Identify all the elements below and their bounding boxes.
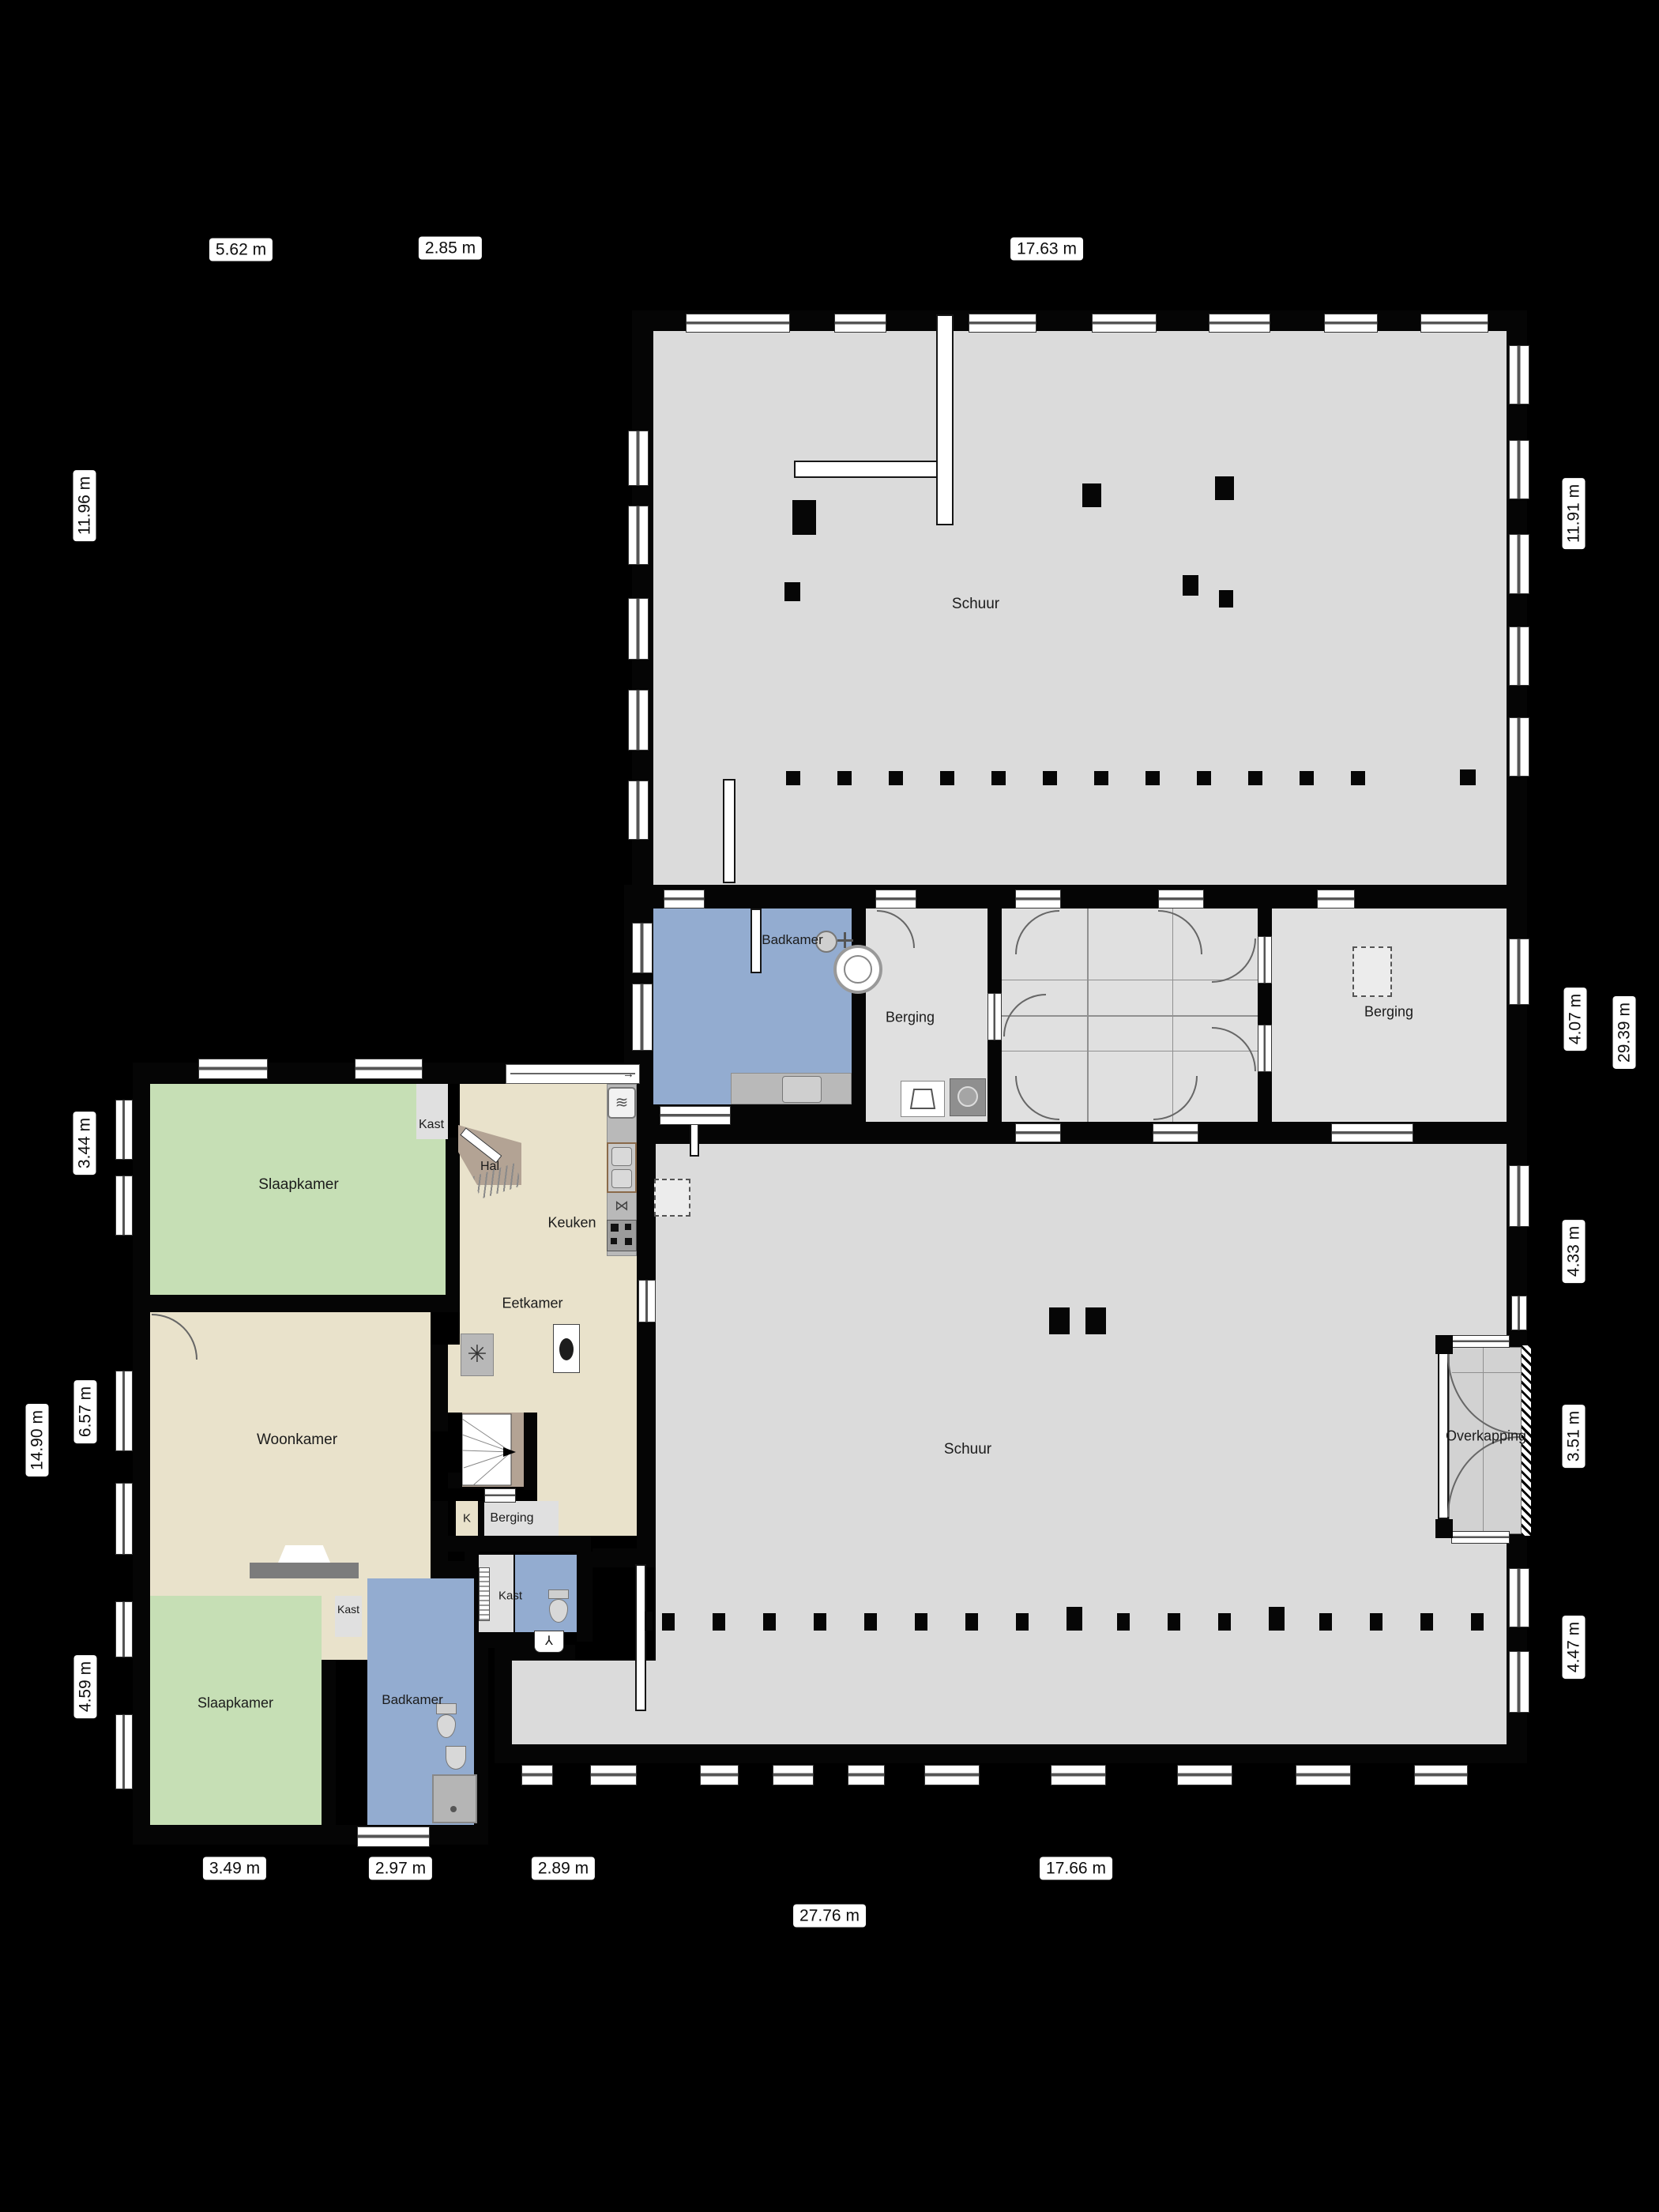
room-label-woonkamer: Woonkamer bbox=[257, 1431, 337, 1449]
dimension-label-bottom-0: 3.49 m bbox=[203, 1857, 266, 1880]
wood-stove-icon: ✳ bbox=[461, 1334, 494, 1376]
window bbox=[1317, 890, 1355, 908]
window bbox=[686, 314, 790, 333]
column-post bbox=[889, 771, 903, 785]
window bbox=[1324, 314, 1378, 333]
column-post bbox=[1219, 590, 1233, 608]
dimension-label-top-0: 5.62 m bbox=[209, 239, 273, 261]
staircase bbox=[462, 1413, 524, 1487]
room-label-badkamer-house: Badkamer bbox=[382, 1692, 442, 1708]
window bbox=[1509, 626, 1529, 686]
window bbox=[1177, 1765, 1232, 1785]
vase-icon bbox=[559, 1338, 574, 1360]
column-post bbox=[1370, 1613, 1382, 1631]
washing-machine-door-icon bbox=[957, 1086, 978, 1107]
column-post bbox=[1197, 771, 1211, 785]
toilet-icon bbox=[548, 1589, 569, 1599]
column-post bbox=[1435, 1335, 1453, 1354]
room-label-berging-house: Berging bbox=[490, 1511, 533, 1525]
hatch-opening bbox=[654, 1179, 690, 1217]
window bbox=[1092, 314, 1157, 333]
window bbox=[987, 993, 1002, 1040]
window bbox=[1509, 534, 1529, 594]
burner-icon bbox=[625, 1238, 632, 1245]
window bbox=[115, 1100, 133, 1160]
burner-icon bbox=[611, 1224, 619, 1232]
column-post bbox=[1218, 1613, 1231, 1631]
hearth bbox=[250, 1563, 359, 1578]
room-label-schuur-bottom: Schuur bbox=[944, 1441, 991, 1458]
boiler-inner-icon bbox=[844, 955, 872, 984]
room-label-kast-top: Kast bbox=[419, 1118, 444, 1132]
dimension-label-bottom-1: 2.97 m bbox=[369, 1857, 432, 1880]
window bbox=[628, 598, 649, 660]
column-post bbox=[662, 1613, 675, 1631]
dimension-label-bottom-3: 17.66 m bbox=[1040, 1857, 1112, 1880]
window bbox=[1015, 1123, 1061, 1142]
dimension-label-bottom-4: 27.76 m bbox=[793, 1905, 866, 1928]
column-post bbox=[713, 1613, 725, 1631]
dimension-label-right-2: 29.39 m bbox=[1613, 996, 1636, 1069]
window bbox=[664, 890, 705, 908]
window bbox=[115, 1371, 133, 1451]
window bbox=[115, 1714, 133, 1789]
dimension-label-left-3: 14.90 m bbox=[26, 1404, 49, 1477]
room-label-schuur-top: Schuur bbox=[952, 596, 999, 613]
bathroom-mid-partition bbox=[750, 908, 762, 973]
dimension-label-left-0: 11.96 m bbox=[73, 470, 96, 541]
dimension-label-right-0: 11.91 m bbox=[1563, 478, 1586, 549]
column-post bbox=[1043, 771, 1057, 785]
room-label-hal: Hal bbox=[480, 1160, 499, 1174]
dishwasher-icon: ⋈ bbox=[608, 1196, 635, 1217]
shed-bottom-floor-ext bbox=[512, 1661, 656, 1744]
window bbox=[1509, 717, 1529, 777]
shed-bottom-south-wall bbox=[495, 1744, 1527, 1763]
shed-bottom-wall-fragment bbox=[635, 1564, 646, 1711]
column-post bbox=[1248, 771, 1262, 785]
column-post bbox=[1319, 1613, 1332, 1631]
dimension-label-top-2: 17.63 m bbox=[1010, 238, 1083, 261]
room-label-slaapkamer-bottom: Slaapkamer bbox=[197, 1695, 273, 1712]
dimension-label-top-1: 2.85 m bbox=[419, 237, 482, 260]
column-post bbox=[1082, 483, 1101, 507]
bedroom1-south-wall bbox=[150, 1295, 460, 1312]
window bbox=[357, 1826, 430, 1847]
shower-drain-icon bbox=[450, 1806, 457, 1812]
window bbox=[1509, 1651, 1529, 1713]
window bbox=[1509, 440, 1529, 499]
column-post bbox=[786, 771, 800, 785]
shed-interior-stub bbox=[723, 779, 735, 883]
window bbox=[521, 1765, 553, 1785]
window bbox=[1258, 1025, 1272, 1072]
window bbox=[1331, 1123, 1413, 1142]
faucet-icon bbox=[844, 932, 846, 948]
dimension-label-right-4: 3.51 m bbox=[1563, 1405, 1586, 1468]
window bbox=[638, 1280, 656, 1322]
dimension-label-right-3: 4.33 m bbox=[1563, 1220, 1586, 1283]
column-post bbox=[1300, 771, 1314, 785]
closet2-floor bbox=[335, 1596, 362, 1637]
window bbox=[632, 923, 653, 973]
basket-glyph bbox=[901, 1082, 944, 1116]
column-post bbox=[792, 500, 816, 535]
kitchen-east-wall-b bbox=[637, 1324, 654, 1566]
window bbox=[1414, 1765, 1468, 1785]
window bbox=[115, 1601, 133, 1657]
dimension-label-bottom-2: 2.89 m bbox=[532, 1857, 595, 1880]
shed-interior-wall-h bbox=[794, 461, 938, 478]
window bbox=[628, 431, 649, 486]
wc-east-wall bbox=[577, 1552, 592, 1642]
window bbox=[115, 1483, 133, 1555]
column-post bbox=[1145, 771, 1160, 785]
column-post bbox=[1049, 1307, 1070, 1334]
window bbox=[1258, 936, 1272, 984]
window bbox=[198, 1059, 268, 1079]
column-post bbox=[991, 771, 1006, 785]
shed-bottom-door-stub bbox=[690, 1119, 699, 1157]
window bbox=[1158, 890, 1204, 908]
column-post bbox=[784, 582, 800, 601]
room-label-kast-bottom: Kast bbox=[337, 1603, 359, 1616]
shed-bottom-floor bbox=[656, 1144, 1507, 1744]
entry-slider-rail bbox=[510, 1073, 635, 1074]
dimension-label-right-5: 4.47 m bbox=[1563, 1616, 1586, 1679]
window bbox=[355, 1059, 423, 1079]
column-post bbox=[1435, 1519, 1453, 1538]
window bbox=[834, 314, 886, 333]
column-post bbox=[837, 771, 852, 785]
room-label-keuken: Keuken bbox=[547, 1215, 596, 1232]
column-post bbox=[763, 1613, 776, 1631]
window bbox=[1209, 314, 1270, 333]
utility-sink-icon bbox=[782, 1076, 822, 1103]
k-berging-divider bbox=[478, 1501, 484, 1536]
room-label-badkamer-mid: Badkamer bbox=[762, 932, 822, 948]
window bbox=[924, 1765, 980, 1785]
room-label-overkapping: Overkapping bbox=[1446, 1428, 1526, 1445]
room-label-eetkamer: Eetkamer bbox=[502, 1296, 562, 1312]
kitchen-east-wall-a bbox=[637, 1084, 654, 1283]
window bbox=[628, 690, 649, 750]
window bbox=[969, 314, 1036, 333]
window bbox=[660, 1106, 731, 1125]
window bbox=[1511, 1296, 1527, 1330]
column-post bbox=[1016, 1613, 1029, 1631]
room-label-kast-wc: Kast bbox=[498, 1589, 522, 1603]
dimension-label-left-4: 4.59 m bbox=[74, 1655, 97, 1718]
sink-bowl-icon bbox=[611, 1147, 632, 1166]
dimension-label-left-1: 3.44 m bbox=[73, 1112, 96, 1175]
oven-icon: ≋ bbox=[608, 1087, 636, 1119]
window bbox=[1296, 1765, 1351, 1785]
window bbox=[773, 1765, 814, 1785]
window bbox=[632, 984, 653, 1051]
louver-door bbox=[479, 1567, 490, 1621]
column-post bbox=[940, 771, 954, 785]
house-west-wall bbox=[133, 1063, 150, 1845]
window bbox=[1015, 890, 1061, 908]
window bbox=[1509, 1568, 1529, 1627]
column-post bbox=[1460, 769, 1476, 785]
column-post bbox=[1085, 1307, 1106, 1334]
column-post bbox=[645, 1612, 653, 1631]
column-post bbox=[1066, 1607, 1082, 1631]
window bbox=[1451, 1335, 1510, 1348]
burner-icon bbox=[625, 1224, 631, 1230]
window bbox=[1509, 939, 1529, 1005]
wc-south-wall bbox=[465, 1632, 537, 1648]
room-label-berging-mid: Berging bbox=[886, 1010, 935, 1026]
column-post bbox=[864, 1613, 877, 1631]
washbasin-icon bbox=[446, 1746, 466, 1770]
window bbox=[590, 1765, 637, 1785]
column-post bbox=[1471, 1613, 1484, 1631]
dimension-label-right-1: 4.07 m bbox=[1564, 987, 1587, 1051]
window bbox=[115, 1176, 133, 1236]
window bbox=[484, 1488, 516, 1503]
burner-icon bbox=[611, 1238, 617, 1244]
window bbox=[1509, 345, 1529, 404]
column-post bbox=[1183, 575, 1198, 596]
column-post bbox=[1269, 1607, 1285, 1631]
shed-interior-wall-v bbox=[936, 314, 954, 525]
fireplace-flue-notch bbox=[278, 1545, 330, 1563]
window bbox=[1420, 314, 1488, 333]
window bbox=[700, 1765, 739, 1785]
window bbox=[628, 781, 649, 840]
window bbox=[1451, 1531, 1510, 1544]
column-post bbox=[1168, 1613, 1180, 1631]
shower-icon bbox=[432, 1774, 477, 1823]
floor-plan-canvas: ≋ ⋈ ✳ bbox=[0, 0, 1659, 2212]
column-post bbox=[915, 1613, 927, 1631]
house-south-wall bbox=[133, 1825, 488, 1845]
room-label-k-closet: K bbox=[463, 1512, 471, 1525]
dimension-label-left-2: 6.57 m bbox=[74, 1380, 97, 1443]
window bbox=[1051, 1765, 1106, 1785]
room-label-berging-right: Berging bbox=[1364, 1004, 1413, 1021]
sink-bowl-icon bbox=[611, 1169, 632, 1188]
column-post bbox=[1117, 1613, 1130, 1631]
livingroom-east-wall-a bbox=[431, 1345, 448, 1431]
window bbox=[1509, 1165, 1529, 1227]
column-post bbox=[814, 1613, 826, 1631]
column-post bbox=[1351, 771, 1365, 785]
laundry-basket-icon bbox=[901, 1081, 945, 1117]
column-post bbox=[1215, 476, 1234, 500]
hatch-opening bbox=[1352, 946, 1392, 997]
wc-north-wall bbox=[448, 1536, 591, 1552]
column-post bbox=[1420, 1613, 1433, 1631]
fountain-sink-icon: ⅄ bbox=[534, 1631, 564, 1653]
window bbox=[848, 1765, 885, 1785]
column-post bbox=[1094, 771, 1108, 785]
shed-top-floor bbox=[653, 331, 1507, 885]
window bbox=[875, 890, 916, 908]
window bbox=[628, 506, 649, 565]
window bbox=[1153, 1123, 1198, 1142]
column-post bbox=[965, 1613, 978, 1631]
room-label-slaapkamer-top: Slaapkamer bbox=[258, 1176, 338, 1194]
